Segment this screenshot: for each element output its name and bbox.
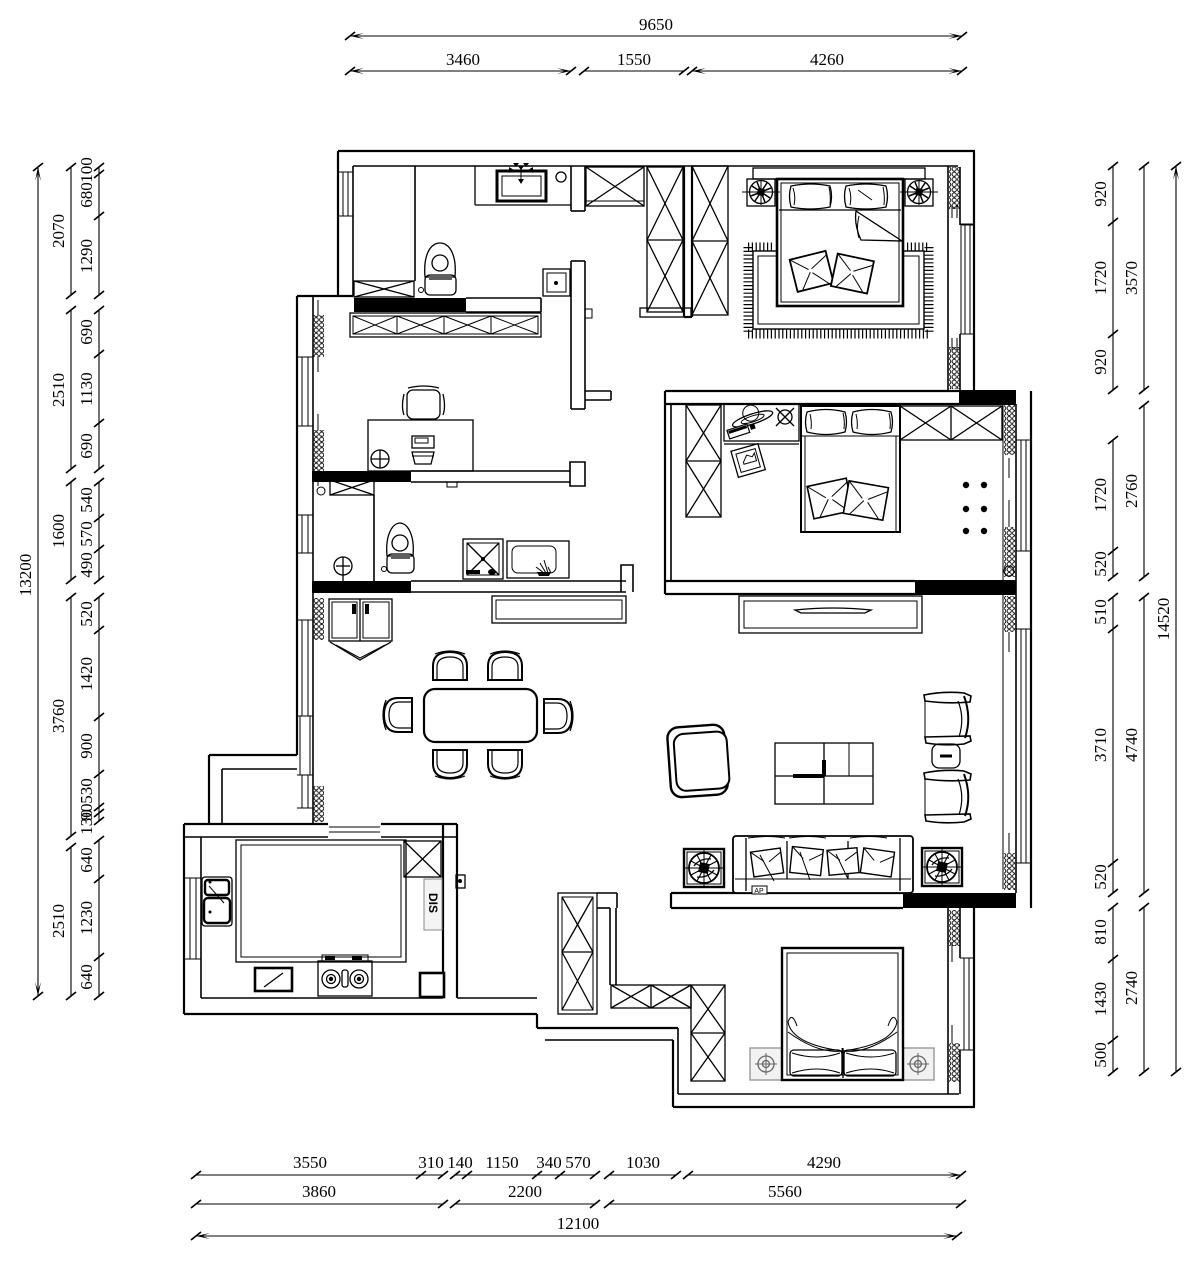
svg-text:5560: 5560	[768, 1182, 802, 1201]
svg-text:490: 490	[77, 552, 96, 578]
svg-text:2760: 2760	[1122, 474, 1141, 508]
svg-text:920: 920	[1091, 349, 1110, 375]
svg-text:4260: 4260	[810, 50, 844, 69]
svg-text:690: 690	[77, 433, 96, 459]
svg-text:3710: 3710	[1091, 728, 1110, 762]
svg-text:2510: 2510	[49, 373, 68, 407]
svg-text:1720: 1720	[1091, 478, 1110, 512]
svg-text:1150: 1150	[485, 1153, 518, 1172]
svg-text:3460: 3460	[446, 50, 480, 69]
svg-text:920: 920	[1091, 181, 1110, 207]
svg-text:900: 900	[77, 733, 96, 759]
svg-text:1290: 1290	[77, 239, 96, 273]
svg-text:810: 810	[1091, 919, 1110, 945]
svg-text:12100: 12100	[557, 1214, 600, 1233]
svg-text:540: 540	[77, 487, 96, 513]
svg-text:1550: 1550	[617, 50, 651, 69]
svg-text:340: 340	[536, 1153, 562, 1172]
svg-text:1130: 1130	[77, 372, 96, 405]
svg-text:1420: 1420	[77, 657, 96, 691]
svg-text:520: 520	[1091, 551, 1110, 577]
svg-text:13200: 13200	[16, 554, 35, 597]
svg-text:1600: 1600	[49, 514, 68, 548]
svg-text:1720: 1720	[1091, 261, 1110, 295]
svg-text:310: 310	[418, 1153, 444, 1172]
svg-text:3570: 3570	[1122, 261, 1141, 295]
svg-text:3760: 3760	[49, 699, 68, 733]
svg-text:3860: 3860	[302, 1182, 336, 1201]
svg-text:2200: 2200	[508, 1182, 542, 1201]
svg-text:9650: 9650	[639, 15, 673, 34]
svg-text:640: 640	[77, 847, 96, 873]
svg-text:640: 640	[77, 964, 96, 990]
svg-text:100: 100	[77, 157, 96, 183]
svg-text:2740: 2740	[1122, 971, 1141, 1005]
svg-text:1030: 1030	[626, 1153, 660, 1172]
svg-text:520: 520	[1091, 864, 1110, 890]
svg-text:1230: 1230	[77, 901, 96, 935]
svg-text:14520: 14520	[1154, 598, 1173, 641]
svg-text:530: 530	[77, 778, 96, 804]
svg-text:690: 690	[77, 319, 96, 345]
svg-text:140: 140	[447, 1153, 473, 1172]
svg-text:DIS: DIS	[426, 893, 440, 913]
svg-text:4290: 4290	[807, 1153, 841, 1172]
svg-text:520: 520	[77, 601, 96, 627]
svg-text:1430: 1430	[1091, 982, 1110, 1016]
svg-text:500: 500	[1091, 1042, 1110, 1068]
svg-text:570: 570	[77, 521, 96, 547]
svg-text:AP: AP	[754, 888, 764, 895]
svg-text:2510: 2510	[49, 904, 68, 938]
svg-text:4740: 4740	[1122, 728, 1141, 762]
svg-text:570: 570	[565, 1153, 591, 1172]
svg-text:510: 510	[1091, 599, 1110, 625]
svg-text:130: 130	[77, 809, 96, 835]
svg-text:680: 680	[77, 182, 96, 208]
svg-text:2070: 2070	[49, 214, 68, 248]
svg-text:3550: 3550	[293, 1153, 327, 1172]
